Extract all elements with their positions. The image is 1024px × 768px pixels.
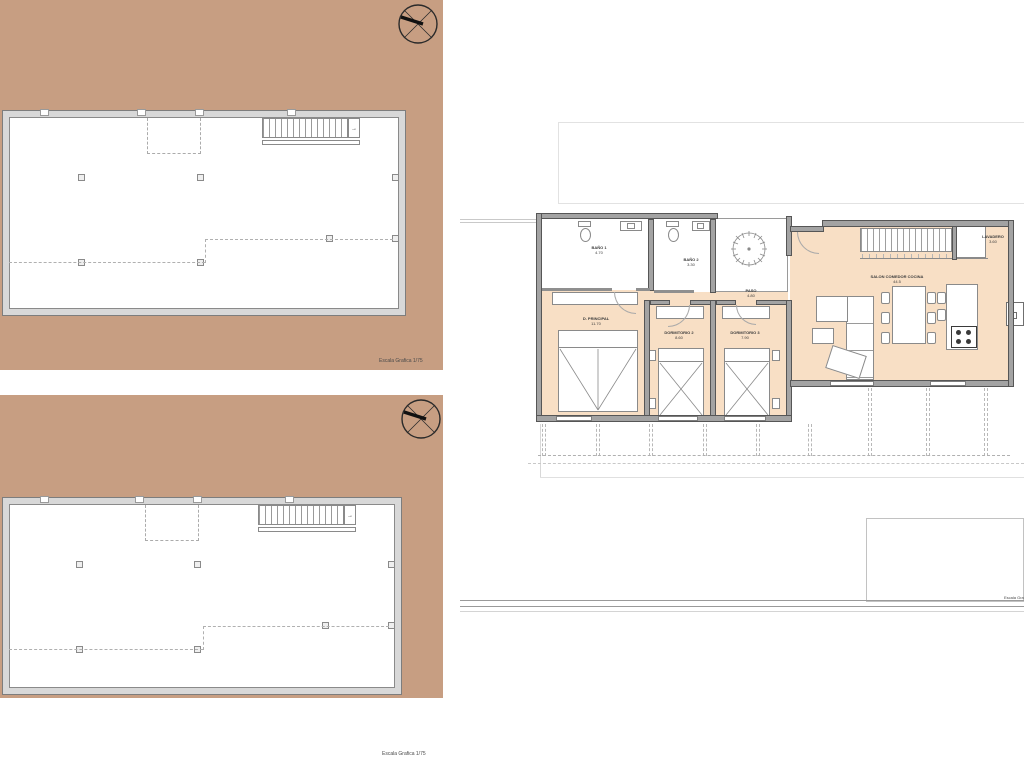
- sofa-short-section: [816, 296, 848, 322]
- island-stool: [937, 292, 946, 304]
- section-line: [460, 606, 1024, 607]
- scale-label-top: Escala Grafica 1/75: [379, 358, 423, 364]
- porch-column-dash: [984, 388, 988, 456]
- porch-column-dash: [703, 424, 707, 456]
- site-line: [540, 477, 1024, 478]
- stair-run: [262, 118, 348, 138]
- room-label-salon: SALON COMEDOR COCINA44.5: [862, 274, 932, 284]
- nightstand: [772, 350, 780, 361]
- wall-segment: [654, 290, 694, 293]
- column-marker: [78, 174, 85, 181]
- stair-landing-line: [860, 258, 988, 259]
- dashed-line: [203, 626, 204, 650]
- room-label-lavadero: LAVADERO3.60: [978, 234, 1008, 244]
- column-marker: [194, 561, 201, 568]
- dashed-line: [9, 262, 205, 263]
- toilet-tank-icon: [666, 221, 679, 227]
- section-line: [460, 600, 1024, 601]
- wall-segment: [710, 219, 716, 293]
- dining-chair: [881, 292, 890, 304]
- dining-table: [892, 286, 926, 344]
- room-label-dorm3: DORMITORIO 37.90: [718, 330, 772, 340]
- north-arrow-icon: [399, 397, 443, 441]
- wall-segment: [756, 300, 790, 305]
- floor-plan-sheet: → Escala Grafica 1/75 → Escala Grafica 1…: [0, 0, 1024, 768]
- wall-opening-marker: [137, 109, 146, 116]
- site-line: [460, 222, 538, 223]
- scale-label-right: Escala Grafica 1/75: [1004, 595, 1024, 600]
- dining-chair: [881, 312, 890, 324]
- wall-opening-marker: [195, 109, 204, 116]
- toilet-bowl-icon: [580, 228, 591, 242]
- stair-landing: [258, 527, 356, 532]
- section-line: [460, 611, 1024, 612]
- wall-segment: [952, 226, 957, 260]
- porch-column-dash: [756, 424, 760, 456]
- wall-segment: [822, 220, 1010, 227]
- window: [556, 416, 592, 421]
- wall-segment: [648, 219, 654, 291]
- wall-segment: [716, 300, 736, 305]
- porch-column-dash: [926, 388, 930, 456]
- dining-chair: [927, 292, 936, 304]
- room-label-bano2: BAÑO 23.30: [676, 257, 706, 267]
- wall-segment: [710, 300, 716, 420]
- column-marker: [392, 174, 399, 181]
- dining-chair: [881, 332, 890, 344]
- dashed-opening-above: [145, 505, 199, 541]
- wall-segment: [786, 216, 792, 256]
- basement-floor-top: [9, 117, 399, 309]
- wall-segment: [650, 300, 670, 305]
- porch-column-dash: [542, 424, 546, 456]
- sink-basin-icon: [697, 223, 704, 229]
- dashed-line: [205, 239, 393, 240]
- scale-label-bottom: Escala Grafica 1/75: [382, 751, 426, 757]
- stair-arrow: →: [348, 118, 360, 138]
- north-arrow-icon: [396, 2, 440, 46]
- column-marker: [388, 622, 395, 629]
- porch-column-dash: [808, 424, 812, 456]
- wall-segment: [790, 380, 1014, 387]
- stair-run: [258, 505, 344, 525]
- side-table: [812, 328, 834, 344]
- sink-basin-icon: [627, 223, 635, 229]
- room-label-dorm2: DORMITORIO 28.60: [652, 330, 706, 340]
- window: [658, 416, 698, 421]
- wall-segment: [636, 288, 650, 291]
- bed-dorm3: [724, 348, 770, 416]
- dashed-line: [9, 649, 203, 650]
- window: [724, 416, 766, 421]
- window: [930, 381, 966, 386]
- roof-outline: [558, 122, 1024, 204]
- overhang-dash-line: [538, 455, 1010, 456]
- wall-opening-marker: [135, 496, 144, 503]
- wall-opening-marker: [287, 109, 296, 116]
- room-label-bano1: BAÑO 14.70: [584, 245, 614, 255]
- wall-opening-marker: [193, 496, 202, 503]
- wall-segment: [690, 300, 712, 305]
- wall-segment: [538, 213, 718, 219]
- wall-segment: [644, 300, 650, 420]
- dashed-line: [203, 626, 389, 627]
- patio-tree-icon: [724, 224, 774, 274]
- room-label-paso: PASO4.80: [738, 288, 764, 298]
- site-line: [460, 219, 538, 220]
- island-stool: [937, 309, 946, 321]
- dashed-line: [205, 239, 206, 263]
- column-marker: [388, 561, 395, 568]
- wall-segment: [786, 300, 792, 420]
- bed-master: [558, 330, 638, 412]
- wall-segment: [542, 288, 612, 291]
- wall-segment: [1008, 220, 1014, 387]
- toilet-bowl-icon: [668, 228, 679, 242]
- porch-column-dash: [596, 424, 600, 456]
- window: [830, 381, 874, 386]
- stair-run: [860, 228, 952, 252]
- wall-opening-marker: [285, 496, 294, 503]
- room-label-principal: D. PRINCIPAL11.70: [566, 316, 626, 326]
- nightstand: [772, 398, 780, 409]
- wall-segment: [536, 213, 542, 421]
- site-rectangle: [866, 518, 1024, 602]
- column-marker: [392, 235, 399, 242]
- wall-opening-marker: [40, 496, 49, 503]
- dining-chair: [927, 332, 936, 344]
- dining-chair: [927, 312, 936, 324]
- column-marker: [76, 561, 83, 568]
- overhang-dash-line: [528, 463, 1024, 464]
- dashed-opening-above: [147, 118, 201, 154]
- bed-dorm2: [658, 348, 704, 416]
- porch-column-dash: [868, 388, 872, 456]
- stair-arrow: →: [344, 505, 356, 525]
- toilet-tank-icon: [578, 221, 591, 227]
- wall-opening-marker: [40, 109, 49, 116]
- stove-cooktop-icon: [951, 326, 977, 348]
- porch-column-dash: [649, 424, 653, 456]
- column-marker: [197, 174, 204, 181]
- site-line: [540, 424, 541, 477]
- stair-landing: [262, 140, 360, 145]
